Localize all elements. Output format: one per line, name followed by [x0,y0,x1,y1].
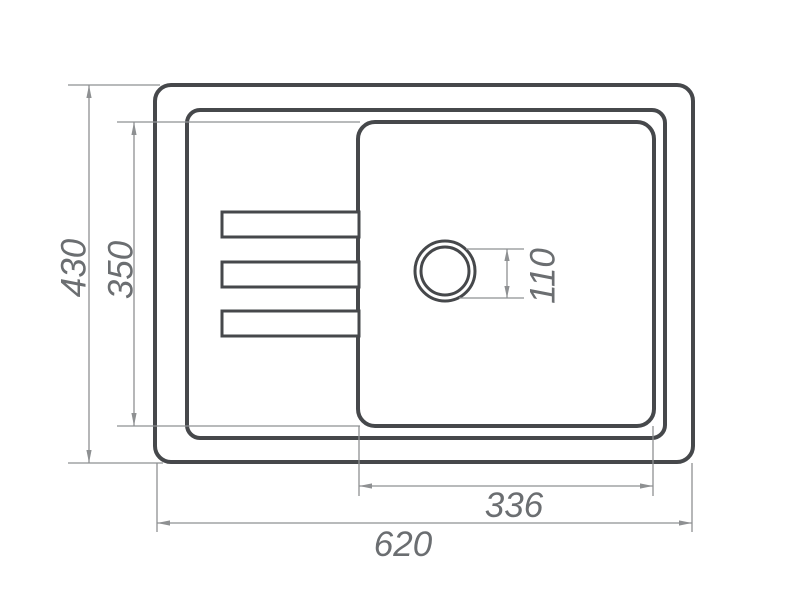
dim-label-overall-length: 620 [374,525,433,564]
dimension-bowl-length: 336 [359,426,653,525]
dim-label-overall-depth: 430 [55,238,94,297]
arrowhead-down-icon [86,450,91,463]
arrowhead-right-icon [679,520,692,525]
sink-body [155,85,693,462]
dim-label-drain-diameter: 110 [524,248,563,304]
drainboard-rib [222,212,359,237]
arrowhead-left-icon [157,520,170,525]
dim-label-bowl-length: 336 [485,486,544,525]
arrowhead-up-icon [131,122,136,135]
sink-bowl [358,122,654,426]
sink-drawing: 430 350 110 336 [0,0,800,600]
arrowhead-up-icon [504,249,509,261]
drainboard-rib [222,311,359,336]
arrowhead-down-icon [504,286,509,298]
arrowhead-down-icon [131,413,136,426]
drainboard-ribs [222,212,359,336]
dimension-overall-length: 620 [157,463,692,564]
drain-hole-inner-circle [421,247,469,295]
arrowhead-up-icon [86,85,91,98]
technical-drawing-canvas: 430 350 110 336 [0,0,800,600]
arrowhead-right-icon [640,483,653,488]
arrowhead-left-icon [359,483,372,488]
dim-label-bowl-depth: 350 [102,240,141,299]
drainboard-rib [222,262,359,287]
